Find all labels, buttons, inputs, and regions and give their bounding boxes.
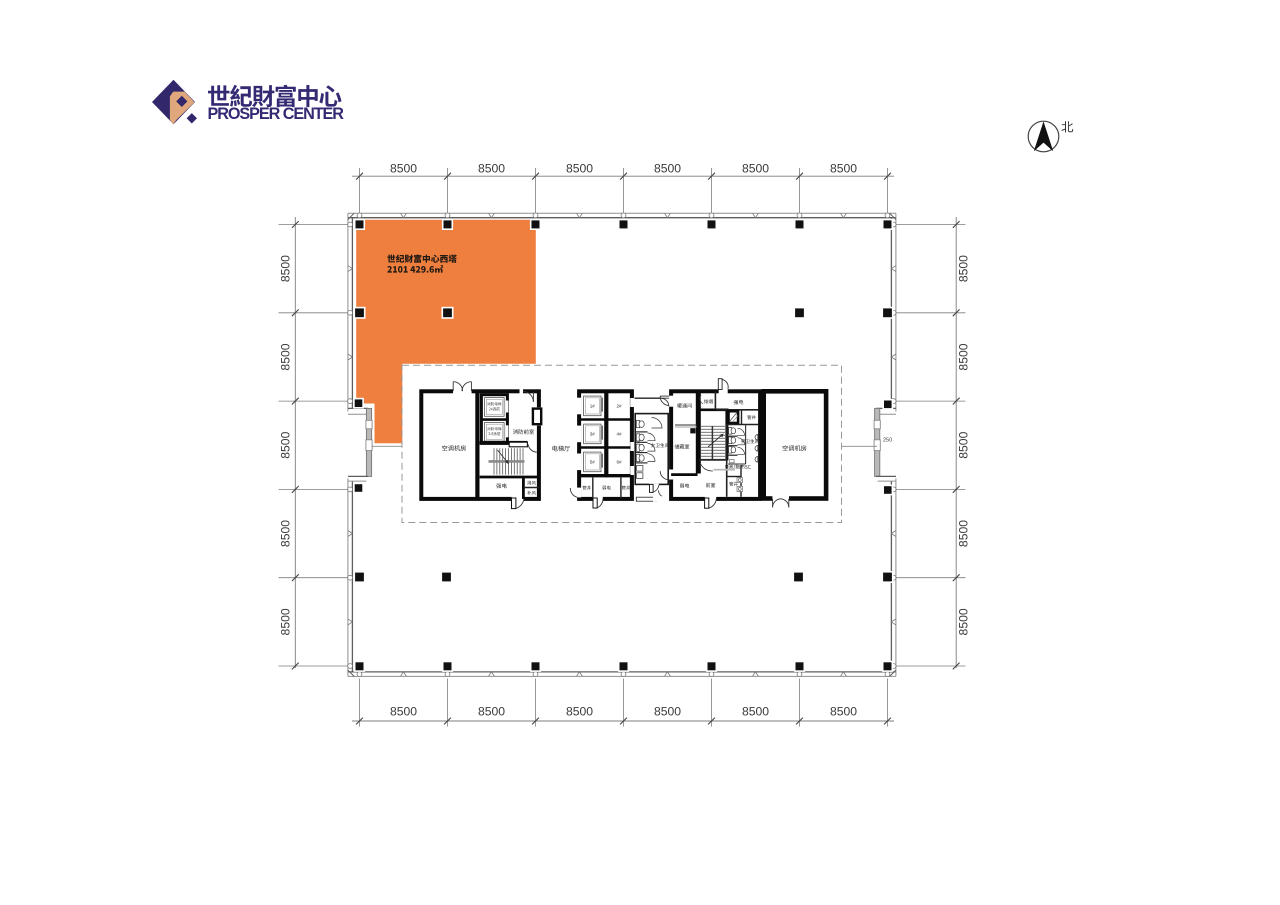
svg-text:2#: 2# [616, 404, 622, 409]
svg-text:250: 250 [883, 438, 892, 444]
svg-text:8500: 8500 [654, 705, 681, 719]
svg-text:8500: 8500 [566, 162, 593, 176]
svg-text:8500: 8500 [957, 608, 971, 635]
svg-text:5#: 5# [590, 460, 596, 465]
svg-text:8500: 8500 [390, 162, 417, 176]
svg-text:3#: 3# [590, 432, 596, 437]
svg-text:8500: 8500 [478, 705, 505, 719]
svg-text:8500: 8500 [742, 705, 769, 719]
svg-text:8500: 8500 [279, 343, 293, 370]
svg-text:8500: 8500 [279, 520, 293, 547]
svg-text:8500: 8500 [830, 162, 857, 176]
svg-text:8500: 8500 [830, 705, 857, 719]
svg-text:8500: 8500 [654, 162, 681, 176]
svg-text:8500: 8500 [742, 162, 769, 176]
svg-text:6#: 6# [616, 460, 622, 465]
svg-text:8500: 8500 [478, 162, 505, 176]
svg-text:8500: 8500 [390, 705, 417, 719]
svg-text:8500: 8500 [957, 255, 971, 282]
svg-text:1#: 1# [590, 404, 596, 409]
svg-text:8500: 8500 [957, 431, 971, 458]
svg-text:8500: 8500 [566, 705, 593, 719]
svg-text:8500: 8500 [957, 343, 971, 370]
svg-text:PROSPER CENTER: PROSPER CENTER [208, 105, 345, 123]
svg-text:8500: 8500 [279, 255, 293, 282]
svg-text:8500: 8500 [279, 608, 293, 635]
svg-text:8500: 8500 [279, 431, 293, 458]
svg-text:4#: 4# [616, 432, 622, 437]
svg-text:8500: 8500 [957, 520, 971, 547]
